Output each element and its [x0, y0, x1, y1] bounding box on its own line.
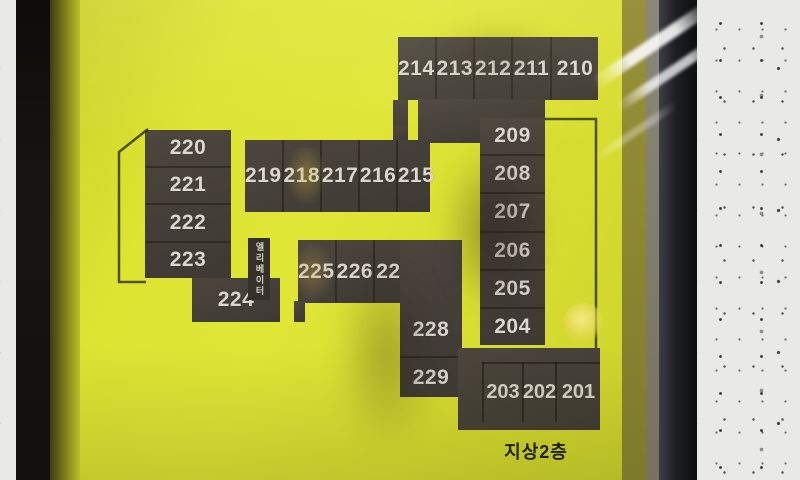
room-222: 222: [145, 203, 231, 241]
person-reflection-top: [428, 25, 563, 80]
glare-on-room-218: [286, 148, 326, 206]
room-215: 215: [396, 140, 434, 212]
room-203: 203: [484, 362, 522, 422]
frame-band-khaki: [646, 0, 659, 480]
elevator-left-label: 엘리베이터: [255, 242, 264, 297]
lower-row-tab: [294, 301, 305, 322]
person-reflection-head: [438, 138, 550, 320]
sign-right-edge: [622, 0, 646, 480]
left-column-rooms: 220 221 222 223: [145, 130, 231, 278]
room-201: 201: [557, 362, 600, 422]
room-220: 220: [145, 130, 231, 166]
elevator-left-block: 엘리베이터: [248, 238, 270, 300]
floor-label: 지상2층: [491, 438, 581, 464]
room-216: 216: [358, 140, 396, 212]
room-221: 221: [145, 166, 231, 204]
room-223: 223: [145, 241, 231, 279]
wall-left: [0, 0, 16, 480]
bottom-row-block: 203 202 201: [458, 348, 600, 430]
glare-reflection: [563, 303, 604, 344]
glare-on-room-225: [298, 242, 334, 302]
wall-right: [697, 0, 800, 480]
sign-left-edge: [50, 0, 80, 480]
frame-left: [16, 0, 50, 480]
room-202: 202: [524, 362, 555, 422]
person-reflection-body: [332, 245, 444, 455]
photo-of-floor-sign: 214 213 212 211 210 .row > .cell:first-c…: [0, 0, 800, 480]
middle-row-rooms: 219 218 217 216 215: [245, 140, 430, 212]
room-219: 219: [245, 140, 282, 212]
